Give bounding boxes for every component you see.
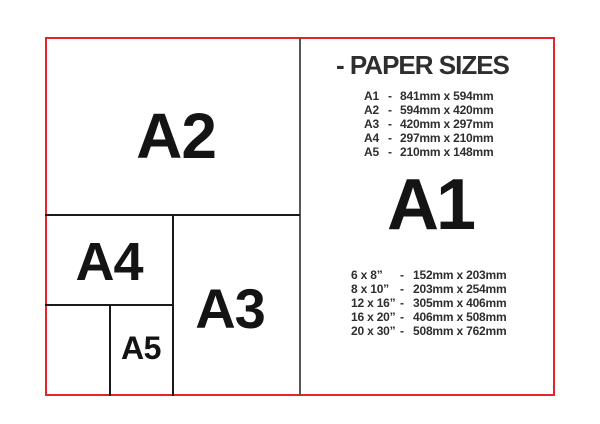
a-series-row: A3 - 420mm x 297mm — [364, 117, 493, 131]
dash-separator: - — [388, 103, 400, 117]
size-name: 12 x 16” — [351, 296, 400, 310]
size-dimensions: 420mm x 297mm — [400, 117, 493, 131]
size-dimensions: 297mm x 210mm — [400, 131, 493, 145]
size-dimensions: 406mm x 508mm — [413, 310, 506, 324]
size-name: A2 — [364, 103, 388, 117]
size-name: 16 x 20” — [351, 310, 400, 324]
dash-separator: - — [388, 131, 400, 145]
a2-sheet-label: A2 — [136, 104, 216, 168]
featured-size-label: A1 — [387, 169, 473, 241]
size-dimensions: 210mm x 148mm — [400, 145, 493, 159]
paper-sizes-infographic: A2 A4 A3 A5 - PAPER SIZES A1 - 841mm x 5… — [0, 0, 600, 424]
size-dimensions: 305mm x 406mm — [413, 296, 506, 310]
size-name: A5 — [364, 145, 388, 159]
size-dimensions: 508mm x 762mm — [413, 324, 506, 338]
a-series-row: A2 - 594mm x 420mm — [364, 103, 493, 117]
panel-divider-line — [299, 37, 301, 396]
a-series-row: A5 - 210mm x 148mm — [364, 145, 493, 159]
size-dimensions: 841mm x 594mm — [400, 89, 493, 103]
inch-series-row: 20 x 30” - 508mm x 762mm — [351, 324, 506, 338]
a5-sheet-label: A5 — [121, 332, 161, 364]
a-series-row: A1 - 841mm x 594mm — [364, 89, 493, 103]
size-dimensions: 594mm x 420mm — [400, 103, 493, 117]
size-name: A4 — [364, 131, 388, 145]
a5-left-line — [109, 304, 111, 396]
dash-separator: - — [400, 296, 413, 310]
a3-sheet-label: A3 — [195, 281, 265, 337]
size-name: A1 — [364, 89, 388, 103]
dash-separator: - — [400, 310, 413, 324]
inch-series-row: 12 x 16” - 305mm x 406mm — [351, 296, 506, 310]
a4-sheet-label: A4 — [75, 235, 142, 289]
size-name: 20 x 30” — [351, 324, 400, 338]
size-name: 6 x 8” — [351, 268, 400, 282]
dash-separator: - — [400, 324, 413, 338]
size-dimensions: 152mm x 203mm — [413, 268, 506, 282]
a-series-row: A4 - 297mm x 210mm — [364, 131, 493, 145]
dash-separator: - — [388, 117, 400, 131]
inch-series-row: 6 x 8” - 152mm x 203mm — [351, 268, 506, 282]
dash-separator: - — [388, 145, 400, 159]
inch-series-size-list: 6 x 8” - 152mm x 203mm 8 x 10” - 203mm x… — [351, 268, 506, 338]
size-name: A3 — [364, 117, 388, 131]
a-series-size-list: A1 - 841mm x 594mm A2 - 594mm x 420mm A3… — [364, 89, 493, 159]
dash-separator: - — [400, 282, 413, 296]
inch-series-row: 8 x 10” - 203mm x 254mm — [351, 282, 506, 296]
size-name: 8 x 10” — [351, 282, 400, 296]
dash-separator: - — [400, 268, 413, 282]
dash-separator: - — [388, 89, 400, 103]
inch-series-row: 16 x 20” - 406mm x 508mm — [351, 310, 506, 324]
panel-title: - PAPER SIZES — [336, 52, 509, 78]
size-dimensions: 203mm x 254mm — [413, 282, 506, 296]
